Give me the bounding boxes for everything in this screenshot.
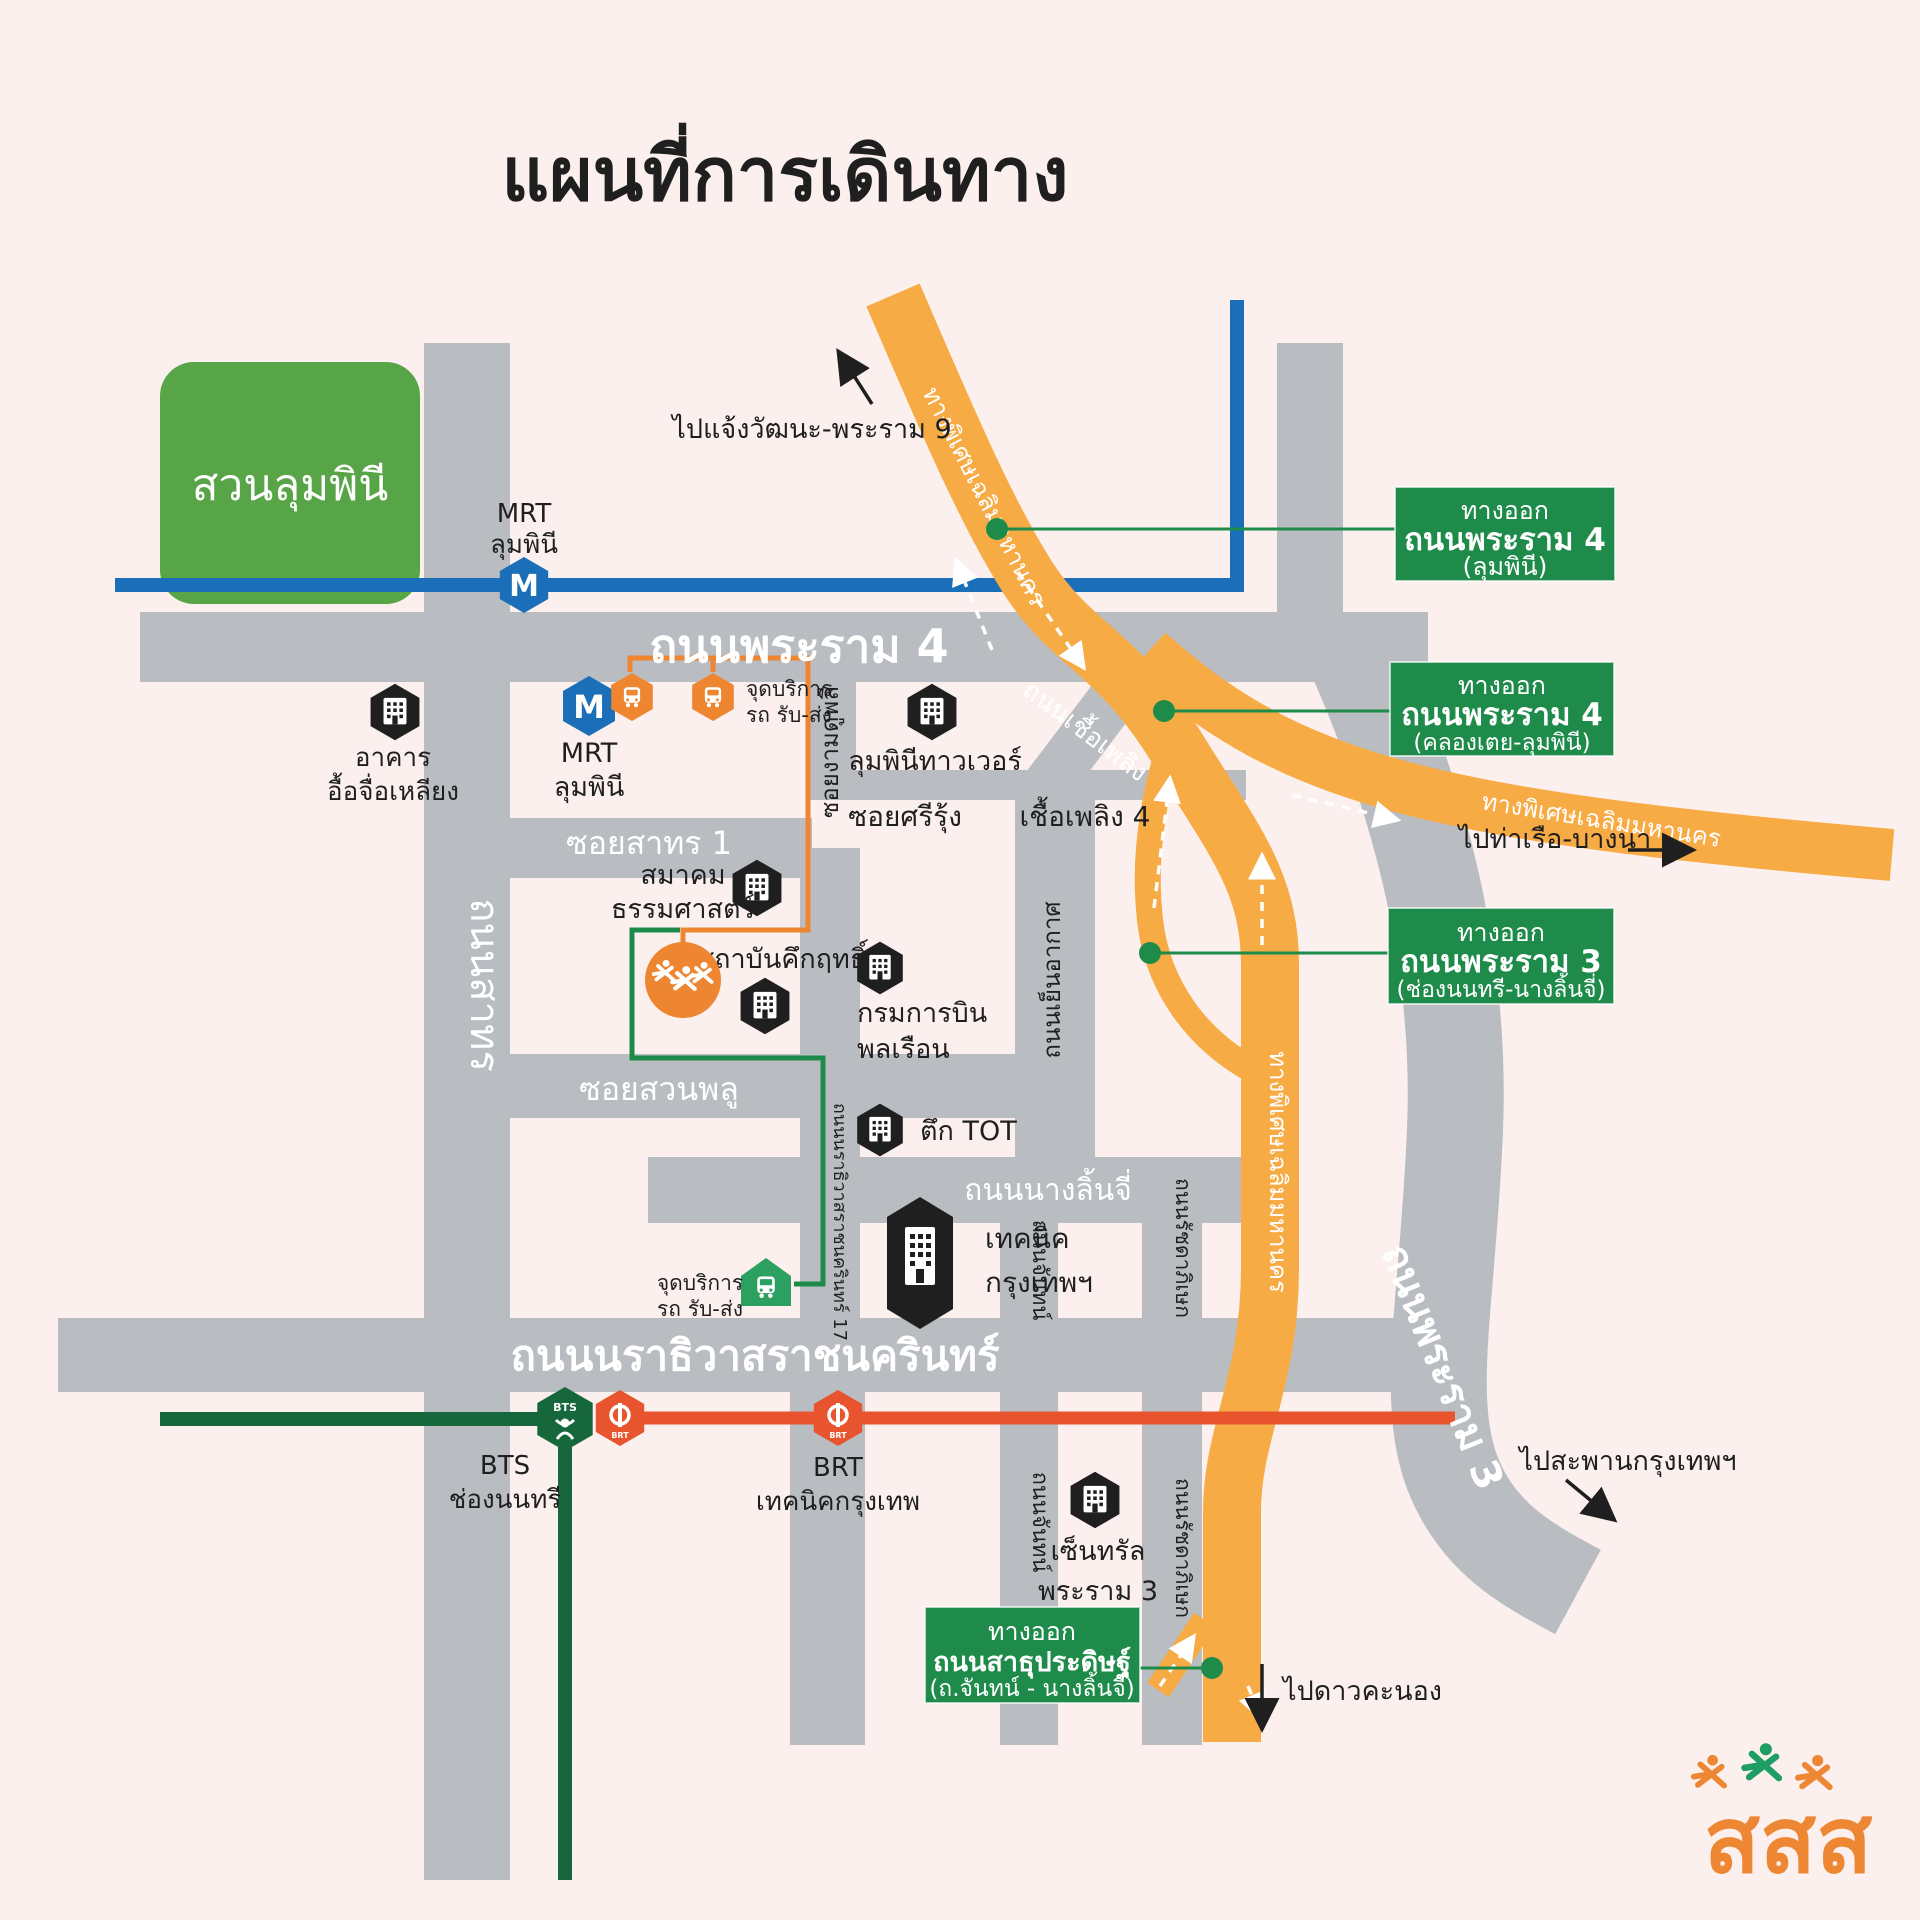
exit3-line1: ทางออก [1457, 918, 1545, 947]
svg-text:M: M [509, 569, 539, 604]
exit4-line2: ถนนสาธุประดิษฐ์ [933, 1646, 1131, 1680]
lumpini-tower: ลุมพินีทาวเวอร์ [848, 684, 1022, 778]
mrt-lower-label1: MRT [561, 738, 618, 769]
yen-akat-label: ถนนเย็นอากาศ [1037, 901, 1066, 1058]
exit3-line2: ถนนพระราม 3 [1400, 944, 1602, 980]
bangkok-bridge-arrow [1566, 1480, 1612, 1518]
building-icon [1071, 1472, 1120, 1528]
expressway-vertical-label: ทางพิเศษเฉลิมมหานคร [1264, 1051, 1292, 1293]
sri-rung-label: ซอยศรีรุ้ง [848, 800, 962, 834]
civil-aviation-dept: กรมการบิน พลเรือน [857, 942, 987, 1065]
brt-label2: เทคนิคกรุงเทพ [756, 1487, 920, 1517]
exit1-line1: ทางออก [1461, 496, 1549, 525]
logo-person-icon [1798, 1755, 1830, 1787]
building-icon [908, 684, 957, 740]
svg-text:BTS: BTS [553, 1401, 577, 1414]
logo-text: สสส [1704, 1787, 1873, 1894]
building-icon [887, 1197, 953, 1329]
logo-person-icon [1694, 1755, 1724, 1786]
kukrit-label: สถาบันคึกฤทธิ์ [698, 939, 869, 975]
ue-chu-liang-label1: อาคาร [355, 743, 431, 773]
ratchada-upper-label: ถนนรัชดาภิเษก [1171, 1178, 1195, 1318]
svg-text:BRT: BRT [611, 1431, 629, 1440]
technic-label2: กรุงเทพฯ [985, 1266, 1093, 1300]
technic-label1: เทคนิค [985, 1222, 1070, 1255]
mrt-top-label1: MRT [497, 499, 552, 529]
travel-map: ถนนพระราม 4 ถนนสาทร ซอยสาทร 1 ซอยสวนพลู … [0, 0, 1920, 1920]
rama4-label: ถนนพระราม 4 [649, 619, 948, 673]
shuttle-bottom-label1: จุดบริการ [657, 1271, 743, 1296]
chan-lower-label: ถนนจันทน์ [1027, 1472, 1052, 1573]
bangkok-bridge-text: ไปสะพานกรุงเทพฯ [1517, 1446, 1736, 1478]
bts-label1: BTS [480, 1451, 530, 1481]
exit2-line1: ทางออก [1458, 671, 1546, 700]
shuttle-top-label2: รถ รับ-ส่ง [746, 703, 832, 727]
brt-station-icon-1: BRT [596, 1390, 644, 1446]
soi-sathorn1-label: ซอยสาทร 1 [566, 824, 732, 862]
svg-text:M: M [573, 688, 605, 726]
thaihealth-logo: สสส [1694, 1743, 1873, 1894]
bts-label2: ช่องนนทรี [449, 1485, 562, 1515]
brt-label1: BRT [813, 1453, 863, 1483]
exit2-line2: ถนนพระราม 4 [1401, 697, 1603, 733]
mrt-top-label2: ลุมพินี [490, 530, 558, 560]
central-label2: พระราม 3 [1038, 1576, 1158, 1607]
sathorn-label: ถนนสาทร [461, 898, 507, 1072]
map-canvas: ถนนพระราม 4 ถนนสาทร ซอยสาทร 1 ซอยสวนพลู … [0, 0, 1920, 1920]
exit-sign-rama4-khlongtoei: ทางออก ถนนพระราม 4 (คลองเตย-ลุมพินี) [1390, 662, 1614, 756]
building-icon [741, 978, 790, 1034]
top-right-road [1277, 343, 1343, 623]
chaengwattana-text: ไปแจ้งวัฒนะ-พระราม 9 [670, 414, 951, 445]
exit1-line3: (ลุมพินี) [1463, 552, 1548, 582]
chaengwattana-arrow [840, 354, 872, 404]
aviation-label1: กรมการบิน [857, 998, 987, 1029]
suan-phlu-label: ซอยสวนพลู [579, 1070, 739, 1109]
ratchada-lower-label: ถนนรัชดาภิเษก [1171, 1478, 1195, 1618]
mrt-lumpini-top: MRT ลุมพินี M [490, 499, 558, 613]
tot-label: ตึก TOT [920, 1116, 1017, 1147]
exit-sign-sathu-pradit: ทางออก ถนนสาธุประดิษฐ์ (ถ.จันทน์ - นางลิ… [925, 1607, 1140, 1703]
exit4-line1: ทางออก [988, 1617, 1076, 1646]
exit3-line3: (ช่องนนทรี-นางลิ้นจี่) [1396, 973, 1605, 1003]
aviation-label2: พลเรือน [857, 1034, 950, 1065]
lumpini-park-label: สวนลุมพินี [192, 460, 389, 512]
svg-text:BRT: BRT [829, 1431, 847, 1440]
exit-sign-rama4-lumpini: ทางออก ถนนพระราม 4 (ลุมพินี) [1395, 487, 1615, 582]
sathu-pradit-road [790, 1392, 865, 1745]
exit4-line3: (ถ.จันทน์ - นางลิ้นจี่) [929, 1672, 1134, 1702]
ue-chu-liang-label2: อื้อจื่อเหลียง [327, 772, 459, 807]
shuttle-top-label1: จุดบริการ [746, 677, 832, 702]
shuttle-bottom-label2: รถ รับ-ส่ง [657, 1297, 743, 1321]
thaihealth-office-marker [645, 942, 721, 1018]
port-bangna-text: ไปท่าเรือ-บางนา [1457, 824, 1651, 855]
page-title: แผนที่การเดินทาง [502, 122, 1069, 218]
mrt-station-icon: M [563, 676, 615, 736]
narathiwat17-label: ถนนนราธิวาสราชนครินทร์ 17 [829, 1103, 850, 1341]
shuttle-stop-bottom [741, 1258, 791, 1306]
dao-khanong-text: ไปดาวคะนอง [1281, 1676, 1442, 1707]
thammasat-label1: สมาคม [640, 860, 725, 891]
exit-sign-rama3: ทางออก ถนนพระราม 3 (ช่องนนทรี-นางลิ้นจี่… [1388, 908, 1614, 1004]
bts-chong-nonsi-icon: BTS [537, 1387, 592, 1451]
mrt-lower-label2: ลุมพินี [554, 772, 625, 804]
thammasat-label2: ธรรมศาสตร์ [611, 893, 755, 925]
logo-person-icon [1745, 1743, 1779, 1778]
narathiwat-label: ถนนนราธิวาสราชนครินทร์ [510, 1331, 1000, 1380]
chuea-phloeng4-label: เชื้อเพลิง 4 [1020, 796, 1151, 833]
lumpini-tower-label: ลุมพินีทาวเวอร์ [848, 745, 1022, 778]
central-label1: เซ็นทรัล [1051, 1533, 1146, 1567]
nang-linchi-label: ถนนนางลิ้นจี่ [964, 1168, 1132, 1208]
building-icon [371, 684, 420, 740]
exit2-line3: (คลองเตย-ลุมพินี) [1413, 730, 1590, 756]
